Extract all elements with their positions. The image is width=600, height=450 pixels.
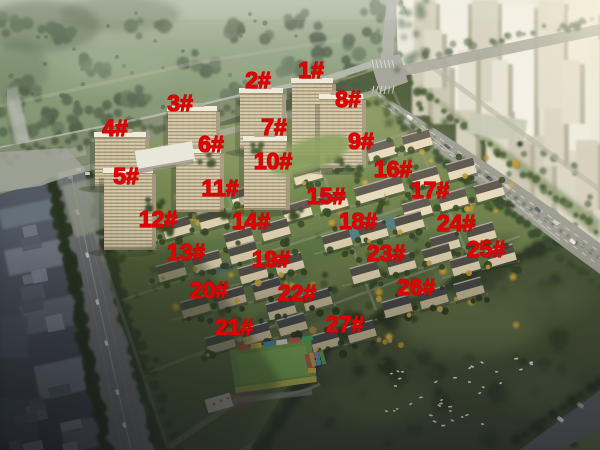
svg-text:4#: 4# (102, 115, 128, 141)
svg-text:13#: 13# (167, 239, 206, 265)
svg-text:20#: 20# (190, 277, 229, 303)
svg-text:2#: 2# (245, 67, 271, 93)
svg-text:22#: 22# (278, 280, 317, 306)
svg-text:8#: 8# (335, 86, 361, 112)
svg-text:1#: 1# (298, 57, 324, 83)
svg-text:24#: 24# (437, 210, 476, 236)
svg-text:10#: 10# (254, 148, 293, 174)
svg-text:6#: 6# (198, 131, 224, 157)
svg-text:26#: 26# (397, 274, 436, 300)
svg-text:21#: 21# (215, 314, 254, 340)
svg-text:18#: 18# (339, 208, 378, 234)
svg-text:7#: 7# (261, 114, 287, 140)
svg-text:23#: 23# (367, 240, 406, 266)
svg-text:11#: 11# (201, 175, 238, 201)
svg-text:3#: 3# (167, 90, 193, 116)
svg-text:5#: 5# (113, 163, 139, 189)
svg-text:9#: 9# (348, 128, 374, 154)
svg-text:12#: 12# (139, 206, 178, 232)
svg-text:27#: 27# (326, 311, 365, 337)
svg-text:16#: 16# (374, 156, 413, 182)
svg-text:15#: 15# (307, 183, 346, 209)
svg-text:19#: 19# (252, 246, 291, 272)
svg-text:25#: 25# (467, 236, 506, 262)
svg-text:14#: 14# (232, 208, 271, 234)
svg-text:17#: 17# (411, 177, 450, 203)
